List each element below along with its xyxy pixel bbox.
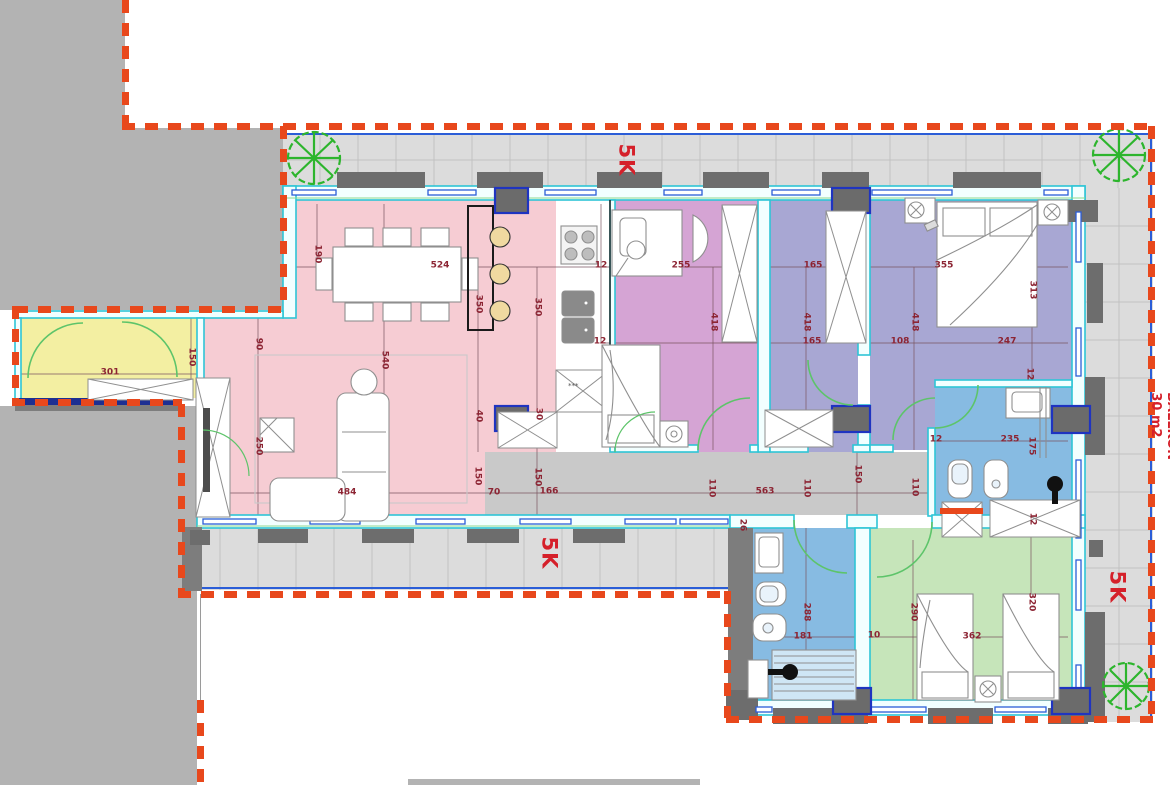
boundary-entry-bottom — [12, 399, 182, 406]
double-bed — [937, 202, 1037, 327]
bed-purple — [602, 345, 660, 447]
shower-grate — [768, 650, 856, 700]
tv-unit — [196, 378, 230, 517]
tree-top-left — [288, 132, 340, 184]
boundary-balcony-left — [178, 404, 185, 594]
kitchen-stove — [561, 226, 597, 264]
balcony-name: BALLKON — [1164, 392, 1170, 460]
boundary-step-left — [280, 126, 287, 310]
boundary-exit-bottom — [197, 700, 204, 785]
wardrobe-middle-tall — [826, 211, 866, 343]
wardrobe-purple — [722, 205, 757, 342]
single-bed-a — [917, 594, 973, 700]
boundary-top — [122, 123, 1153, 130]
balcony-size: 30 m2 — [1148, 392, 1163, 437]
bedside-table-green — [975, 676, 1001, 702]
balcony-area-label: BALLKON 30 m2 — [1069, 392, 1170, 438]
cabinet-corridor — [498, 412, 557, 448]
boundary-left-mid — [15, 306, 283, 313]
nightstand-right — [1038, 200, 1068, 225]
boundary-bottom-right — [726, 716, 1153, 723]
floor-plan-drawing: *** — [0, 0, 1170, 785]
tree-top-right — [1093, 129, 1145, 181]
washing-machine — [660, 421, 688, 447]
floor-plan-canvas: *** — [0, 0, 1170, 785]
side-table-round — [351, 369, 377, 395]
corridor — [485, 452, 935, 515]
radiator-bath — [940, 508, 983, 514]
single-bed-b — [1003, 594, 1059, 700]
wardrobe-middle-low — [765, 410, 833, 447]
boundary-bottom-step — [724, 591, 731, 718]
boundary-entry-left — [12, 306, 19, 404]
corner-table — [260, 418, 294, 452]
wardrobe-green-b — [990, 500, 1080, 537]
boundary-balcony-bottom — [178, 591, 730, 598]
boundary-left-top — [122, 0, 129, 128]
boundary-thin-extension — [200, 594, 201, 702]
wardrobe-entry — [88, 379, 193, 400]
svg-text:***: *** — [568, 382, 579, 390]
wardrobe-green-a — [942, 502, 982, 537]
